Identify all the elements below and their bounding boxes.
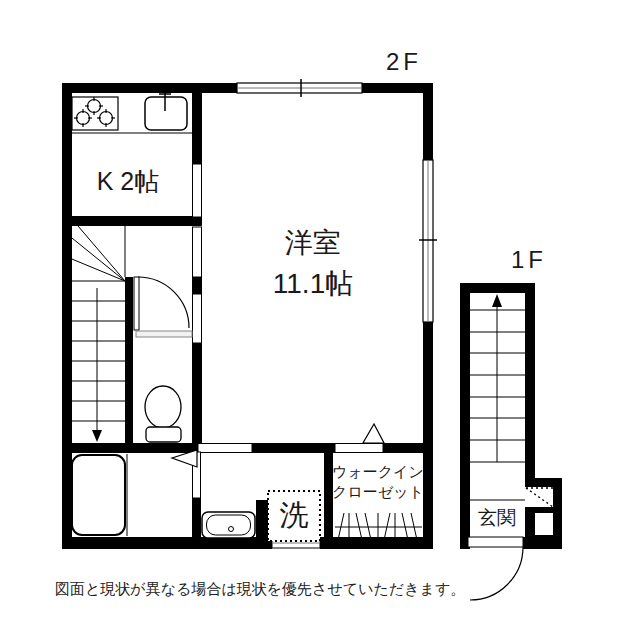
entrance-door-arc [470, 547, 523, 600]
toilet-icon [145, 386, 181, 442]
wic-label-line1: ウォークイン [332, 463, 424, 482]
stairs-2f [67, 226, 125, 442]
floorplan-drawing [0, 0, 640, 640]
door-leaf-open [134, 277, 139, 330]
washroom-door-leaf [198, 444, 252, 453]
entrance-door [468, 537, 523, 600]
shoe-cabinet-dashed [526, 488, 553, 507]
wic-label-line2: クローゼット [332, 483, 424, 502]
stove-icon [72, 97, 118, 130]
door-threshold [136, 331, 192, 337]
main-room-size: 11.1帖 [273, 265, 353, 303]
floor-label-2f: 2F [386, 48, 422, 76]
wic-door-swing-triangle-icon [363, 424, 384, 443]
bathtub-icon [72, 455, 125, 535]
toilet-door-leaf [193, 294, 202, 343]
window-right [419, 160, 437, 322]
floor-label-1f: 1F [511, 246, 547, 274]
shoe-box-lower [535, 513, 553, 535]
toilet-room-door [134, 277, 192, 337]
window-top [237, 79, 362, 97]
kitchen-label: K 2帖 [97, 165, 160, 198]
bathroom [72, 450, 197, 536]
laundry-label: 洗 [280, 496, 309, 536]
kitchen-door-leaf [193, 164, 202, 217]
main-room-name: 洋室 [285, 224, 341, 262]
vanity-icon [202, 512, 255, 538]
wic-floor-hatch [335, 513, 422, 540]
stairs-down-arrow-icon [92, 288, 102, 442]
floorplan-canvas: 2F K 2帖 洋室 11.1帖 ウォークイン クローゼット 洗 1F 玄関 図… [0, 0, 640, 640]
door-arc [138, 277, 189, 328]
stairs-up-arrow-icon [492, 294, 502, 462]
stairs-1f [470, 294, 525, 500]
kitchen-counter [68, 93, 192, 133]
disclaimer-text: 図面と現状が異なる場合は現状を優先させていただきます。 [55, 580, 465, 599]
entrance-door-leaf [468, 537, 523, 547]
wic-door-leaf [335, 444, 383, 453]
entrance-label: 玄関 [478, 505, 516, 531]
hall-door-leaf [193, 227, 202, 277]
sink-icon [145, 93, 187, 130]
